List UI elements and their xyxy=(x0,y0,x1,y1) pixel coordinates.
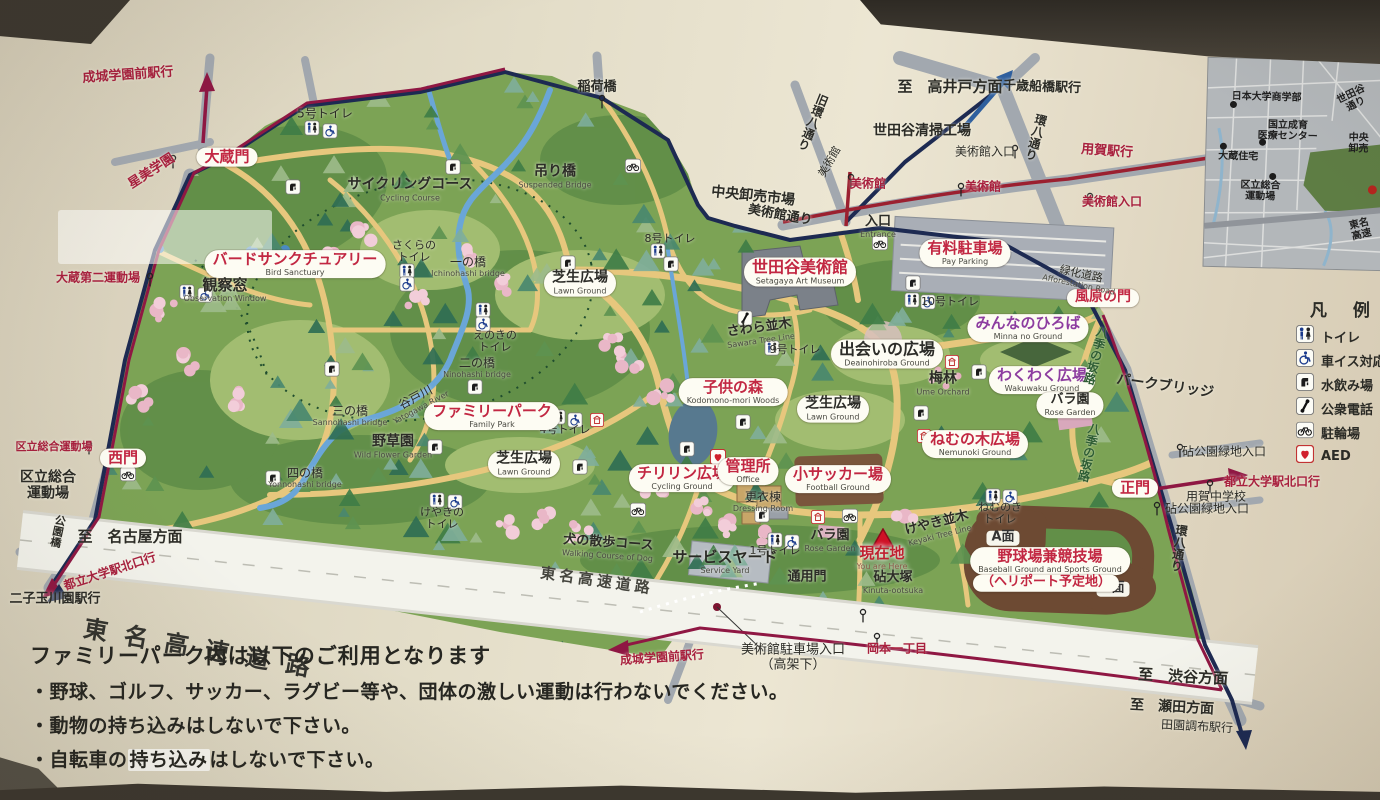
inset-label: 国立成育 医療センター xyxy=(1258,119,1319,142)
rules-item: ・野球、ゴルフ、サッカー、ラグビー等や、団体の激しい運動は行わないでください。 xyxy=(30,677,788,704)
sign-board: 成城学園前駅行星美学園大蔵門5号トイレ稲荷橋サイクリングコースCycling C… xyxy=(0,0,1380,800)
legend-label: トイレ xyxy=(1321,327,1360,346)
legend-label: 車イス対応 xyxy=(1321,351,1380,370)
faded-notice-panel xyxy=(58,210,272,264)
legend-item: 水飲み場 xyxy=(1296,375,1380,393)
legend-item: トイレ xyxy=(1296,327,1380,345)
bike-icon xyxy=(1296,421,1314,443)
highlighted-text: 持ち込み xyxy=(128,749,210,771)
legend-item: 車イス対応 xyxy=(1296,351,1380,369)
toilet-icon xyxy=(1296,325,1314,347)
legend-item: 公衆電話 xyxy=(1296,399,1380,417)
inset-label: 大蔵住宅 xyxy=(1218,151,1258,163)
water-icon xyxy=(1296,373,1314,395)
football-ground-field xyxy=(794,453,884,506)
legend-label: 水飲み場 xyxy=(1321,375,1373,394)
legend: 凡 例 トイレ車イス対応水飲み場公衆電話駐輪場AED xyxy=(1296,296,1380,465)
legend-label: AED xyxy=(1321,449,1351,464)
rose-garden-beds-2 xyxy=(818,525,845,539)
legend-label: 駐輪場 xyxy=(1321,423,1360,442)
phone-icon xyxy=(1296,397,1314,419)
aed-icon xyxy=(1296,445,1314,467)
legend-title: 凡 例 xyxy=(1310,296,1380,321)
signboard-photo: { "sign": { "rules": { "title": "ファミリーパー… xyxy=(0,0,1380,800)
legend-item: 駐輪場 xyxy=(1296,423,1380,441)
rules-item: ・自転車の持ち込みはしないで下さい。 xyxy=(30,745,788,772)
inset-label: 中央卸売 xyxy=(1345,132,1372,155)
parking-lot xyxy=(891,216,1114,301)
dressing-room-building xyxy=(768,508,788,519)
legend-label: 公衆電話 xyxy=(1321,399,1373,418)
rules-title: ファミリーパーク内は以下のご利用となります xyxy=(30,640,788,670)
inset-label: 日本大学商学部 xyxy=(1231,91,1301,104)
park-rules-text: ファミリーパーク内は以下のご利用となります ・野球、ゴルフ、サッカー、ラグビー等… xyxy=(30,640,788,772)
legend-item: AED xyxy=(1296,447,1380,465)
rules-item: ・動物の持ち込みはしないで下さい。 xyxy=(30,711,788,738)
wheel-icon xyxy=(1296,349,1314,371)
inset-label: 区立総合 運動場 xyxy=(1240,180,1281,203)
inset-city-map: 日本大学商学部国立成育 医療センター大蔵住宅区立総合 運動場世田谷通り中央卸売東… xyxy=(1203,58,1380,270)
